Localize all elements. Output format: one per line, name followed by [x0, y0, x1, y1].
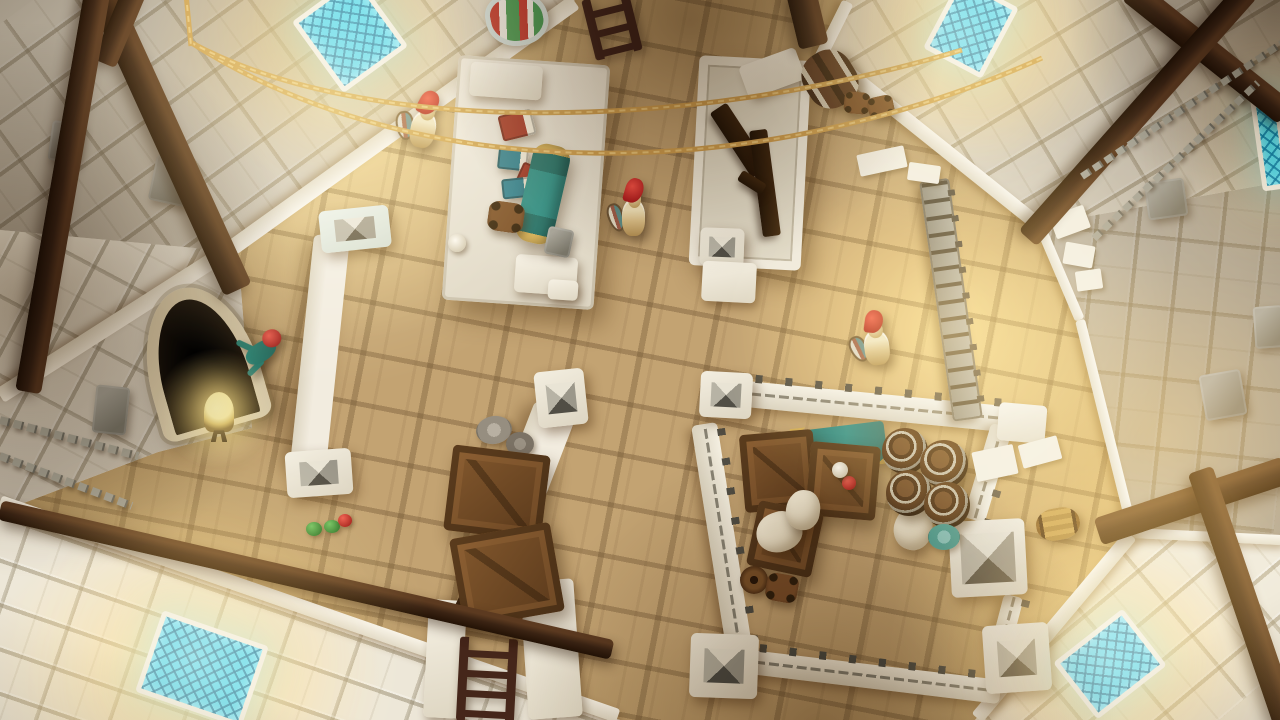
- pillar-cap: [533, 368, 589, 429]
- pyramid-cap-icon: [959, 532, 1016, 585]
- pyramid-cap-icon: [704, 649, 745, 684]
- pillar-cap: [982, 622, 1053, 694]
- platform-cap: [701, 261, 757, 304]
- pyramid-cap-icon: [709, 237, 735, 258]
- knight-guard[interactable]: [614, 184, 654, 246]
- cabbage: [306, 522, 322, 536]
- stone-sconce: [1253, 305, 1280, 349]
- debris: [1075, 268, 1104, 291]
- pillar-cap: [699, 371, 753, 420]
- pillar-cap: [948, 518, 1028, 598]
- platform-ledge: [547, 279, 578, 301]
- platform-cap: [996, 402, 1047, 444]
- pyramid-cap-icon: [299, 460, 339, 487]
- pyramid-cap-icon: [334, 216, 377, 242]
- pyramid-cap-icon: [545, 382, 577, 414]
- pillar-cap: [689, 633, 759, 699]
- wooden-stool: [486, 200, 526, 235]
- wall-lantern[interactable]: [204, 392, 234, 432]
- wooden-stool: [764, 571, 800, 604]
- knight-guard[interactable]: [852, 313, 902, 376]
- apple: [842, 476, 856, 490]
- ladder[interactable]: [456, 637, 518, 720]
- tomato: [338, 514, 352, 527]
- game-viewport[interactable]: [0, 0, 1280, 720]
- white-orb: [832, 462, 848, 478]
- pillar-cap: [318, 204, 392, 253]
- white-orb: [448, 234, 466, 252]
- barrel: [924, 482, 970, 528]
- pyramid-cap-icon: [997, 639, 1038, 677]
- stone-sconce: [92, 384, 131, 435]
- stone-sconce: [1198, 369, 1247, 422]
- pillar-cap: [284, 448, 353, 498]
- clay-pot: [740, 566, 768, 594]
- plate: [928, 524, 960, 550]
- platform-cap: [469, 62, 543, 101]
- pyramid-cap-icon: [710, 382, 741, 407]
